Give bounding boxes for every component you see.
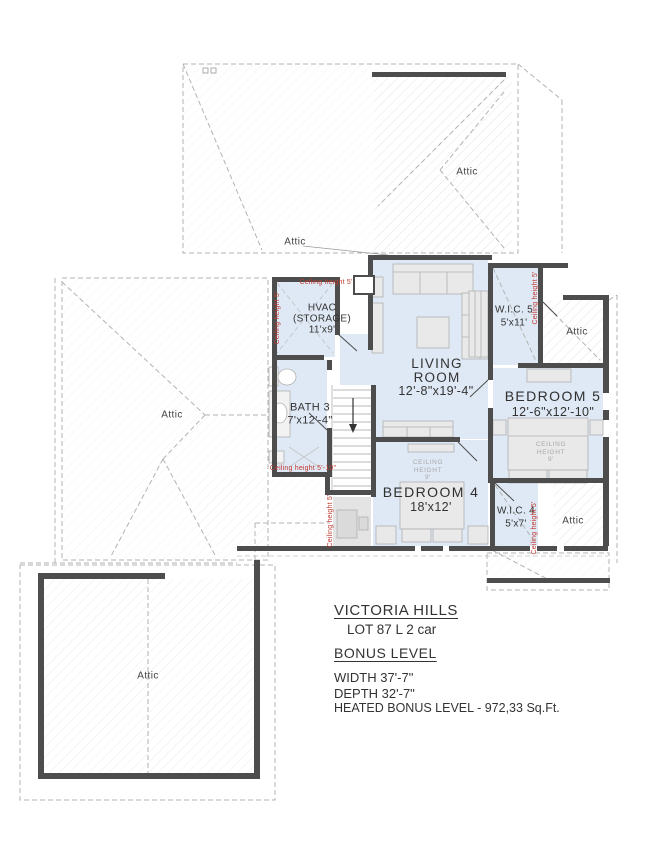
attic-label-left: Attic: [161, 409, 182, 421]
bedroom4-name: BEDROOM 4: [383, 484, 480, 500]
note-ch5-hvac-left: Ceiling height 5': [274, 292, 282, 345]
level-title: BONUS LEVEL: [334, 645, 437, 661]
attic-label-top-center: Attic: [284, 236, 305, 248]
bedroom5-dims: 12'-6"x12'-10": [512, 405, 595, 419]
living-room-dims: 12'-8"x19'-4": [398, 384, 473, 398]
note-ch5-wic4: Ceiling height 5': [531, 502, 539, 555]
note-ch5-wic5: Ceiling height 5': [532, 272, 540, 325]
hvac-name-1: HVAC: [308, 302, 336, 314]
floor-plan-drawing: [0, 0, 650, 867]
project-title: VICTORIA HILLS: [334, 602, 458, 619]
staircase: [332, 385, 371, 490]
heated-area-spec: HEATED BONUS LEVEL - 972,33 Sq.Ft.: [334, 701, 560, 715]
attic-label-bottom-right: Attic: [562, 515, 583, 527]
wic5-dims: 5'x11': [501, 317, 528, 329]
attic-label-top-right: Attic: [456, 166, 477, 178]
note-ch5-hvac-top: Ceiling height 5': [300, 279, 353, 287]
note-ch510-bath: Ceiling height 5'-10": [270, 465, 336, 473]
depth-spec: DEPTH 32'-7": [334, 686, 415, 701]
bath3-dims: 7'x12'-4": [287, 415, 332, 428]
bedroom4-dims: 18'x12': [410, 500, 452, 514]
width-spec: WIDTH 37'-7": [334, 670, 413, 685]
bath3-name: BATH 3: [290, 402, 330, 415]
ceiling-height-9-bedroom4: CEILINGHEIGHT9': [413, 459, 443, 482]
floor-plan-page: Attic Attic Attic Attic Attic Attic LIVI…: [0, 0, 650, 867]
bedroom5-name: BEDROOM 5: [505, 388, 602, 404]
hvac-name-2: (STORAGE): [293, 313, 351, 325]
chase-box: [354, 276, 374, 294]
wic4-dims: 5'x7': [505, 518, 526, 530]
wic4-name: W.I.C. 4: [497, 505, 535, 517]
attic-label-bottom-left: Attic: [137, 670, 158, 682]
lot-subtitle: LOT 87 L 2 car: [347, 622, 436, 637]
wic5-name: W.I.C. 5: [495, 304, 533, 316]
hvac-dims: 11'x9': [309, 324, 336, 336]
note-ch5-alcove: Ceiling height 5': [327, 495, 335, 548]
attic-label-right: Attic: [566, 326, 587, 338]
ceiling-height-9-bedroom5: CEILINGHEIGHT9': [536, 441, 566, 464]
